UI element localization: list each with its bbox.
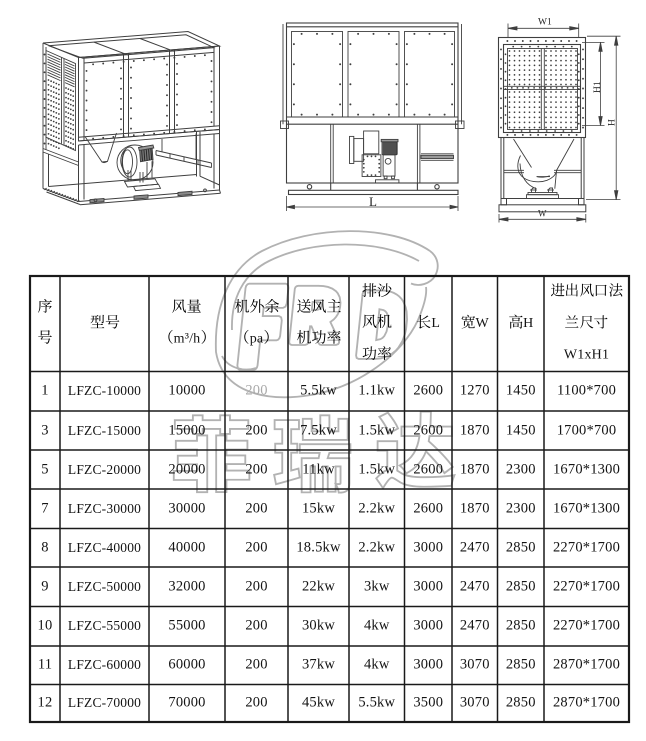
svg-text:H: H — [608, 119, 618, 126]
svg-text:W: W — [538, 209, 547, 219]
svg-text:H1: H1 — [593, 81, 603, 93]
svg-text:L: L — [369, 194, 377, 209]
svg-text:W1: W1 — [538, 18, 552, 28]
